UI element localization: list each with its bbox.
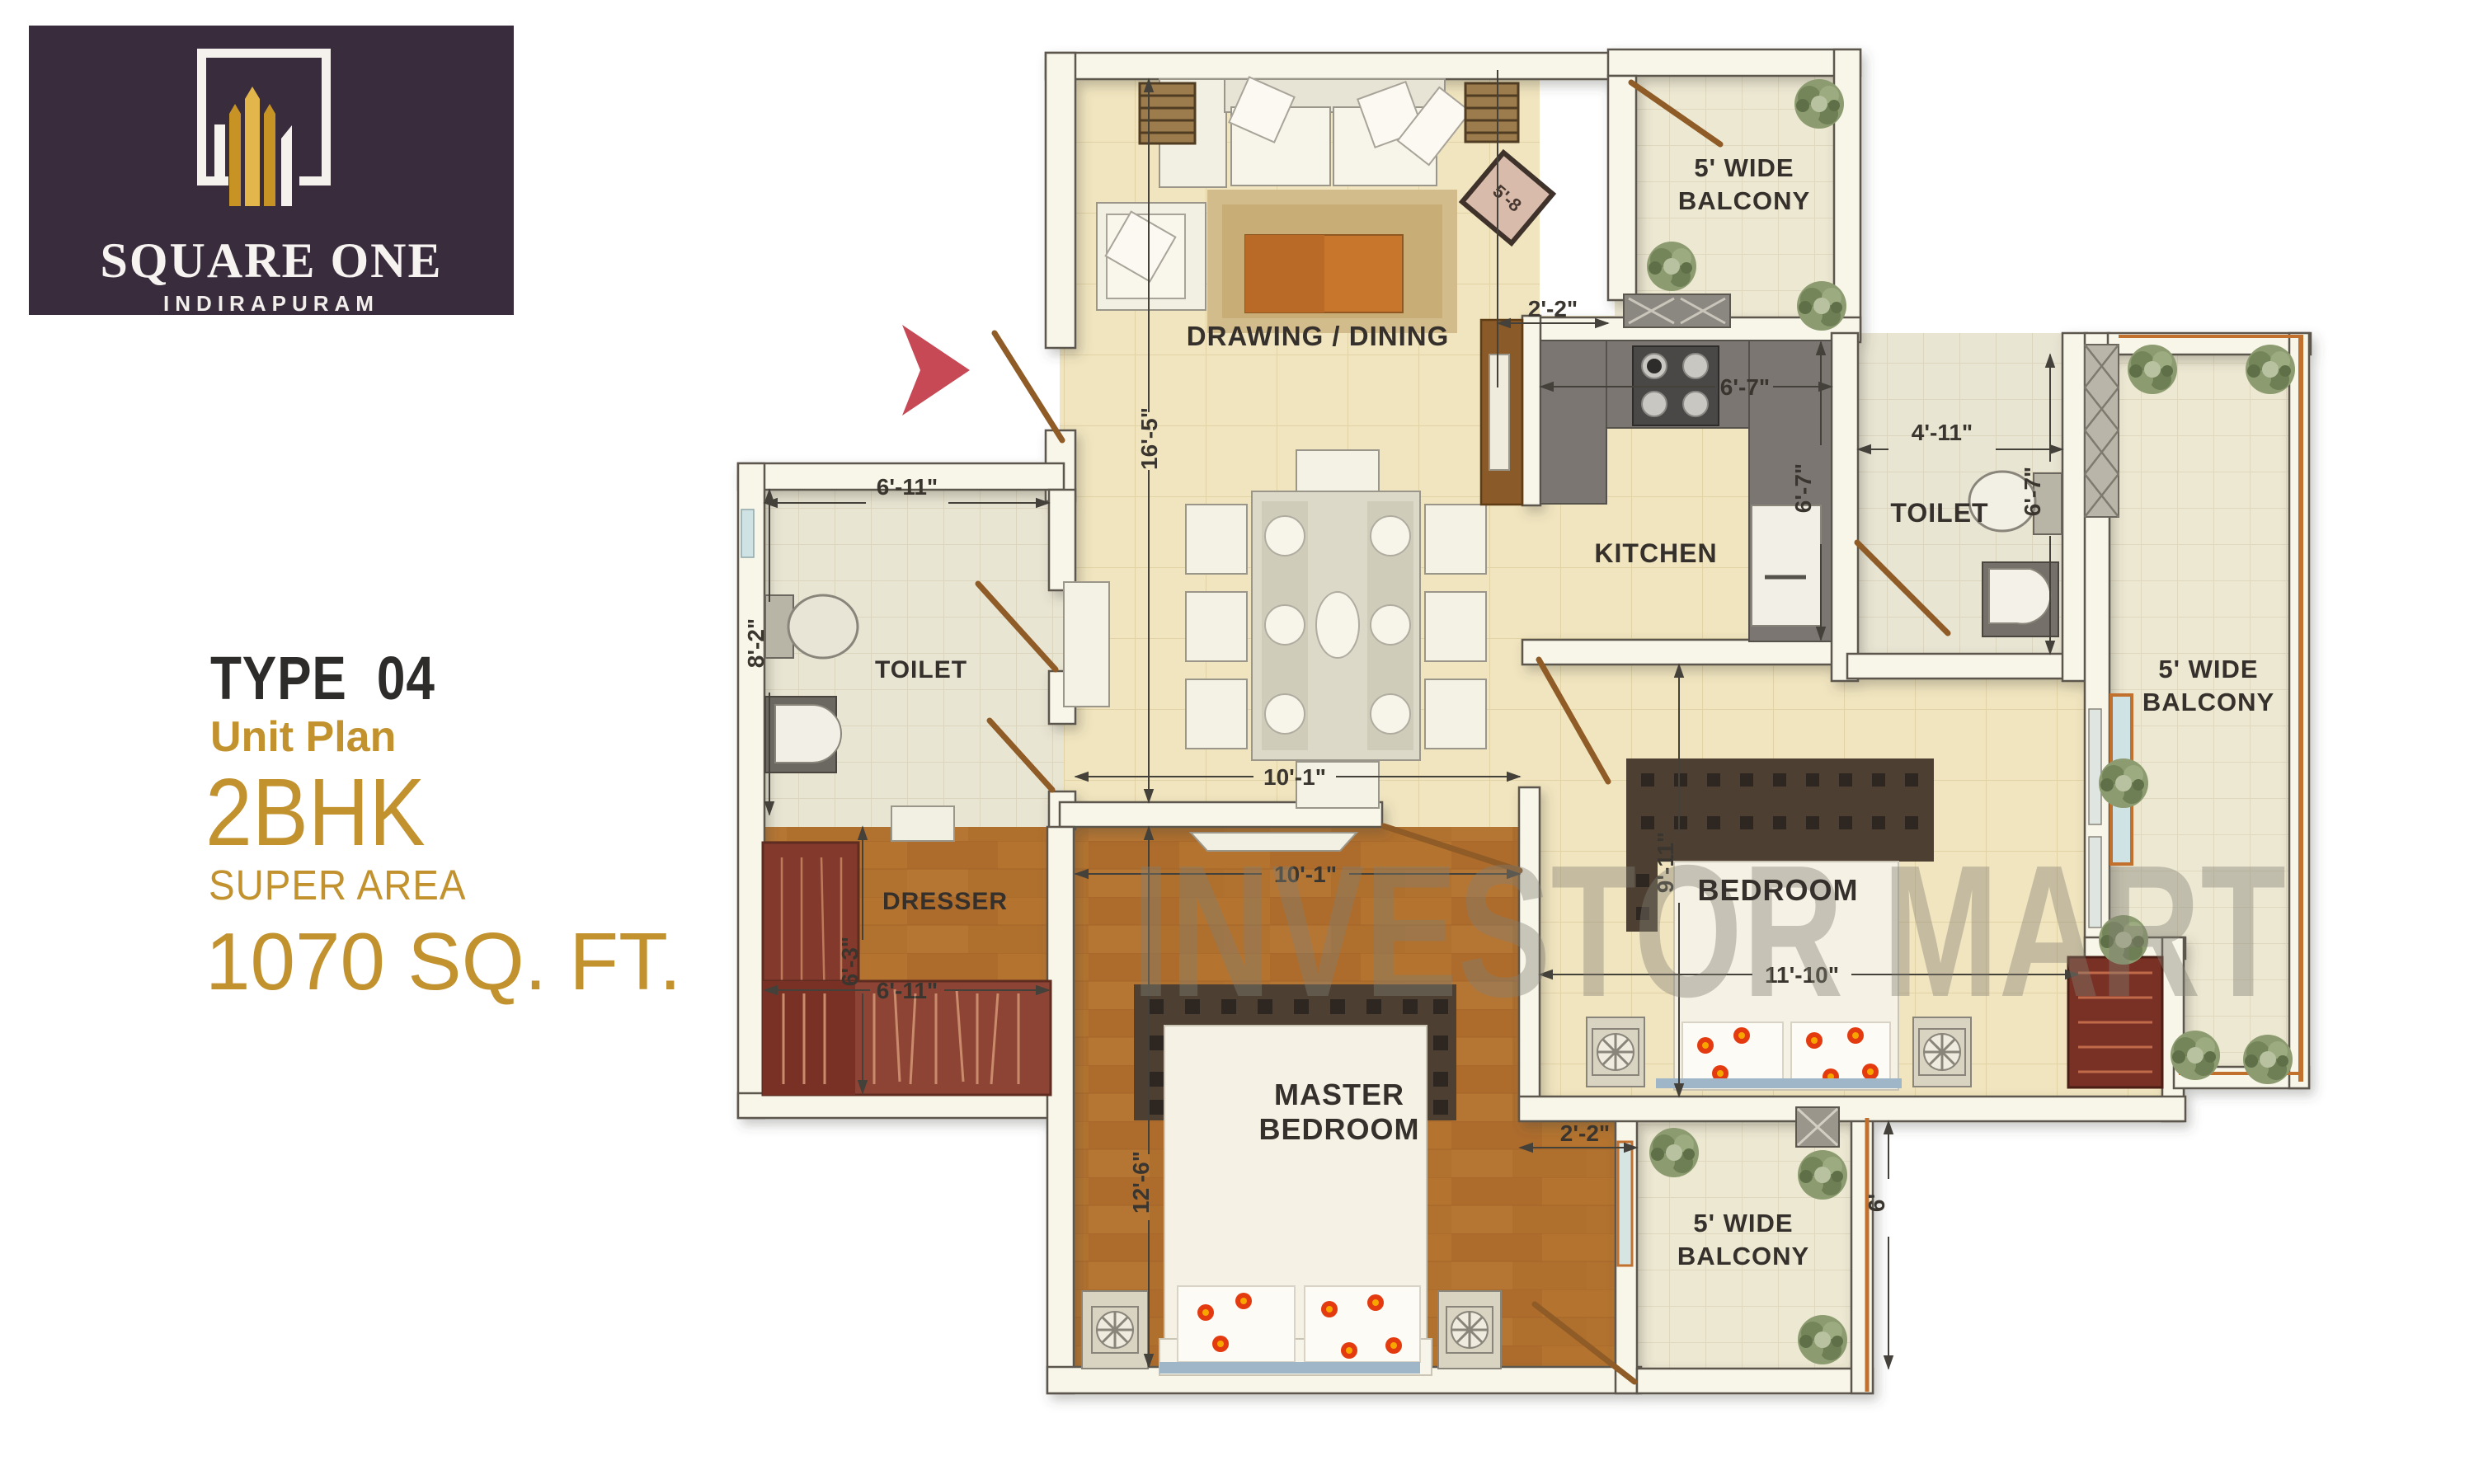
svg-text:5' WIDE: 5' WIDE (1693, 1209, 1793, 1237)
svg-text:2'-2": 2'-2" (1528, 296, 1578, 322)
svg-text:BALCONY: BALCONY (1677, 1242, 1809, 1270)
svg-text:10'-1": 10'-1" (1263, 764, 1326, 790)
svg-text:6'-7": 6'-7" (2020, 467, 2045, 516)
svg-text:6'-11": 6'-11" (877, 978, 938, 1003)
svg-text:BEDROOM: BEDROOM (1698, 873, 1859, 907)
svg-text:2'-2": 2'-2" (1560, 1120, 1610, 1146)
svg-text:BALCONY: BALCONY (2142, 688, 2274, 716)
svg-text:5' WIDE: 5' WIDE (1694, 153, 1794, 182)
svg-text:6'-7": 6'-7" (1720, 374, 1770, 400)
svg-text:5' WIDE: 5' WIDE (2158, 655, 2258, 683)
svg-text:TOILET: TOILET (875, 656, 967, 683)
svg-text:DRESSER: DRESSER (882, 888, 1008, 915)
svg-text:INVESTOR MART: INVESTOR MART (1131, 827, 2286, 1036)
svg-text:TOILET: TOILET (1890, 498, 1988, 528)
svg-text:KITCHEN: KITCHEN (1594, 538, 1717, 568)
svg-text:6'-11": 6'-11" (877, 474, 938, 500)
svg-text:6'-3": 6'-3" (837, 937, 863, 986)
svg-text:8'-2": 8'-2" (743, 618, 769, 668)
svg-text:BEDROOM: BEDROOM (1259, 1112, 1420, 1146)
svg-text:16'-5": 16'-5" (1136, 407, 1162, 470)
svg-text:MASTER: MASTER (1274, 1078, 1404, 1111)
svg-text:BALCONY: BALCONY (1678, 186, 1810, 215)
svg-text:DRAWING / DINING: DRAWING / DINING (1187, 321, 1450, 351)
svg-text:12'-6": 12'-6" (1128, 1151, 1154, 1214)
svg-text:4'-11": 4'-11" (1912, 420, 1973, 445)
svg-text:6'-7": 6'-7" (1790, 463, 1816, 513)
svg-text:6': 6' (1864, 1194, 1889, 1212)
